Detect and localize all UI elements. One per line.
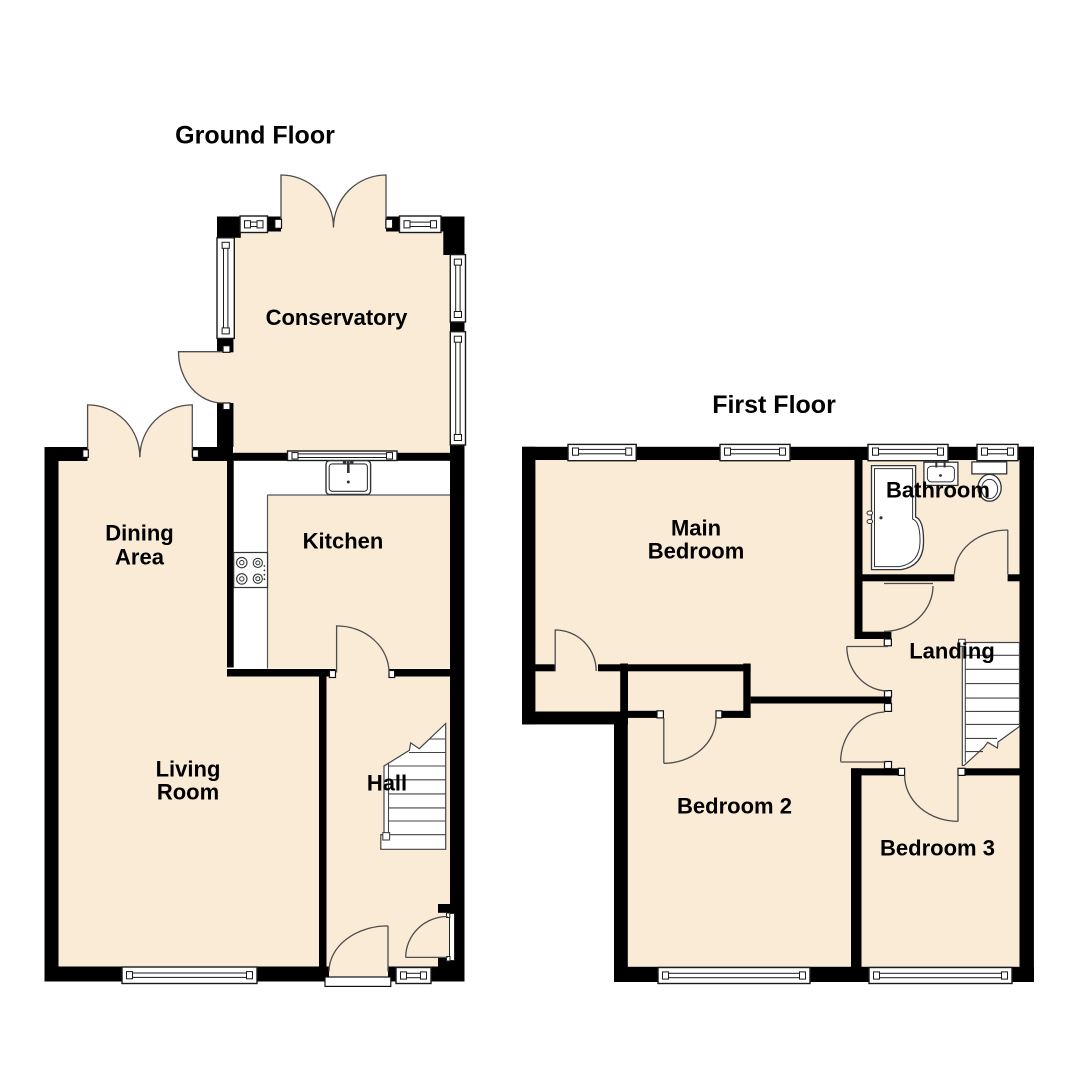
svg-text:Area: Area bbox=[115, 544, 165, 569]
svg-text:Main: Main bbox=[671, 515, 721, 540]
svg-text:First Floor: First Floor bbox=[712, 391, 836, 419]
svg-text:Living: Living bbox=[156, 756, 221, 781]
svg-text:Landing: Landing bbox=[909, 638, 995, 663]
svg-text:Conservatory: Conservatory bbox=[266, 305, 409, 330]
svg-text:Bedroom 2: Bedroom 2 bbox=[677, 793, 792, 818]
svg-text:Bedroom: Bedroom bbox=[648, 538, 745, 563]
svg-text:Room: Room bbox=[157, 779, 219, 804]
svg-text:Hall: Hall bbox=[367, 770, 407, 795]
svg-text:Bedroom 3: Bedroom 3 bbox=[880, 835, 995, 860]
svg-text:Dining: Dining bbox=[105, 520, 173, 545]
svg-text:Bathroom: Bathroom bbox=[886, 477, 990, 502]
svg-text:Kitchen: Kitchen bbox=[303, 528, 384, 553]
svg-text:Ground Floor: Ground Floor bbox=[175, 122, 335, 150]
